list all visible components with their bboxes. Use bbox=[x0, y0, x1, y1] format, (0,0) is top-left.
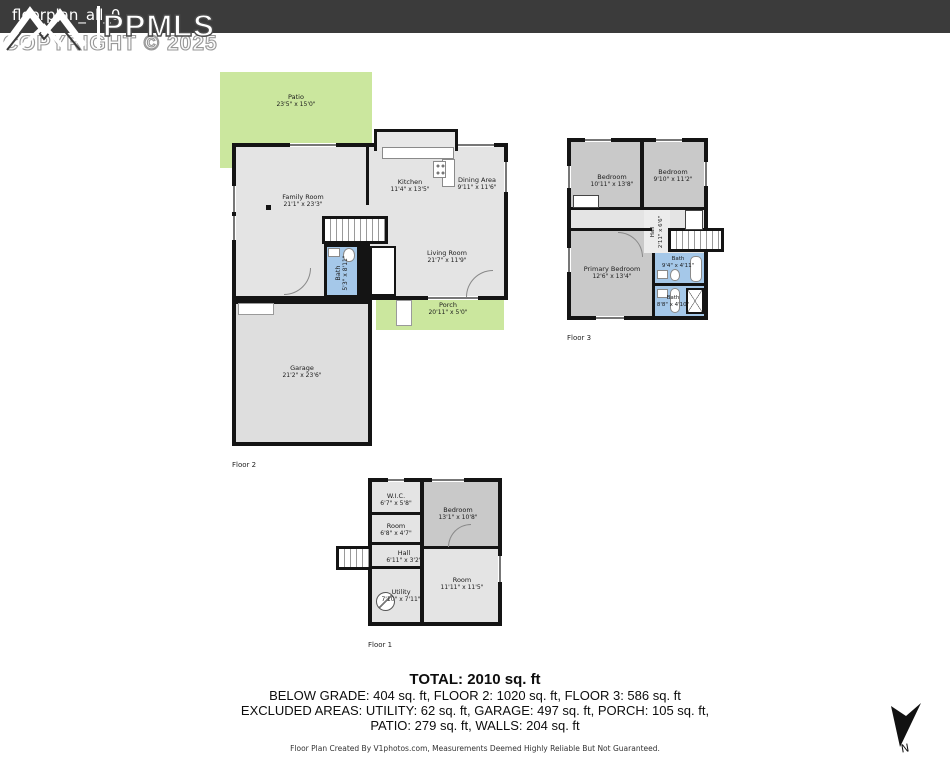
floor2-stairs bbox=[322, 216, 388, 244]
room-label-living: Living Room 21'7" x 11'9" bbox=[427, 249, 467, 265]
porch-steps bbox=[396, 300, 412, 326]
window bbox=[596, 316, 624, 320]
wall bbox=[640, 142, 644, 209]
room-label-bedroom-left: Bedroom 10'11" x 13'8" bbox=[591, 173, 634, 189]
room-label-dining: Dining Area 9'11" x 11'6" bbox=[457, 176, 496, 192]
room-label-garage: Garage 21'2" x 23'6" bbox=[282, 364, 321, 380]
floorplan-page: floorplan_all_0 PPMLS COPYRIGHT © 2025 P… bbox=[0, 0, 950, 768]
room-label-porch: Porch 20'11" x 5'0" bbox=[428, 301, 467, 317]
room-label-utility: Utility 7'10" x 7'11" bbox=[381, 588, 420, 604]
total-area-text: TOTAL: 2010 sq. ft bbox=[0, 671, 950, 688]
room-label-bath2: Bath 5'3" x 8'11" bbox=[334, 255, 350, 290]
window bbox=[498, 556, 502, 582]
sink-fixture bbox=[657, 270, 668, 279]
window bbox=[232, 216, 236, 240]
area-summary: TOTAL: 2010 sq. ft BELOW GRADE: 404 sq. … bbox=[0, 671, 950, 733]
floor3-tag: Floor 3 bbox=[567, 334, 591, 342]
room-label-room2: Room 11'11" x 11'5" bbox=[441, 576, 484, 592]
room-label-hall3: Hall 2'11" x 6'6" bbox=[649, 216, 665, 248]
garage-steps bbox=[238, 303, 274, 315]
window bbox=[458, 143, 494, 147]
excluded-areas-text: EXCLUDED AREAS: UTILITY: 62 sq. ft, GARA… bbox=[0, 703, 950, 718]
room-label-room1: Room 6'8" x 4'7" bbox=[380, 522, 411, 538]
window bbox=[388, 478, 404, 482]
floor2-tag: Floor 2 bbox=[232, 461, 256, 469]
disclaimer-text: Floor Plan Created By V1photos.com, Meas… bbox=[0, 744, 950, 753]
room-label-wic: W.I.C. 6'7" x 5'8" bbox=[380, 492, 411, 508]
window bbox=[432, 478, 464, 482]
wall bbox=[372, 566, 420, 569]
ppmls-mountain-logo-icon bbox=[0, 2, 104, 52]
room-label-bedroom1: Bedroom 13'1" x 10'8" bbox=[438, 506, 477, 522]
floor3-stairs bbox=[668, 228, 724, 252]
wall bbox=[655, 283, 704, 286]
kitchen-counter bbox=[382, 147, 454, 159]
closet bbox=[573, 195, 599, 208]
window bbox=[567, 248, 571, 272]
room-label-patio: Patio 23'5" x 15'0" bbox=[276, 93, 315, 109]
wall bbox=[571, 228, 652, 231]
wall bbox=[372, 542, 420, 545]
room-label-hall1: Hall 6'11" x 3'2" bbox=[386, 549, 421, 565]
ppmls-logo-text: PPMLS bbox=[103, 8, 215, 44]
room-label-bath-bottom: Bath 8'8" x 4'10" bbox=[657, 295, 689, 309]
stove-fixture bbox=[433, 161, 446, 178]
room-label-family: Family Room 21'1" x 23'3" bbox=[282, 193, 324, 209]
floor1-stairs bbox=[336, 546, 372, 570]
window bbox=[567, 166, 571, 188]
room-label-bath-top: Bath 9'4" x 4'11" bbox=[662, 256, 694, 270]
window bbox=[290, 143, 336, 147]
closet bbox=[370, 246, 396, 296]
closet bbox=[685, 210, 703, 230]
wall bbox=[372, 512, 420, 515]
toilet-fixture bbox=[670, 269, 680, 281]
support-post bbox=[266, 205, 271, 210]
floor-areas-text: BELOW GRADE: 404 sq. ft, FLOOR 2: 1020 s… bbox=[0, 688, 950, 703]
room-label-bedroom-right: Bedroom 9'10" x 11'2" bbox=[653, 168, 692, 184]
window bbox=[585, 138, 611, 142]
window bbox=[232, 186, 236, 212]
room-label-primary: Primary Bedroom 12'6" x 13'4" bbox=[584, 265, 641, 281]
excluded-areas-text2: PATIO: 279 sq. ft, WALLS: 204 sq. ft bbox=[0, 718, 950, 733]
window bbox=[656, 138, 682, 142]
wall bbox=[360, 244, 370, 298]
room-label-kitchen: Kitchen 11'4" x 13'5" bbox=[390, 178, 429, 194]
window bbox=[504, 162, 508, 192]
window bbox=[704, 162, 708, 186]
floor1-tag: Floor 1 bbox=[368, 641, 392, 649]
wall bbox=[366, 147, 369, 205]
